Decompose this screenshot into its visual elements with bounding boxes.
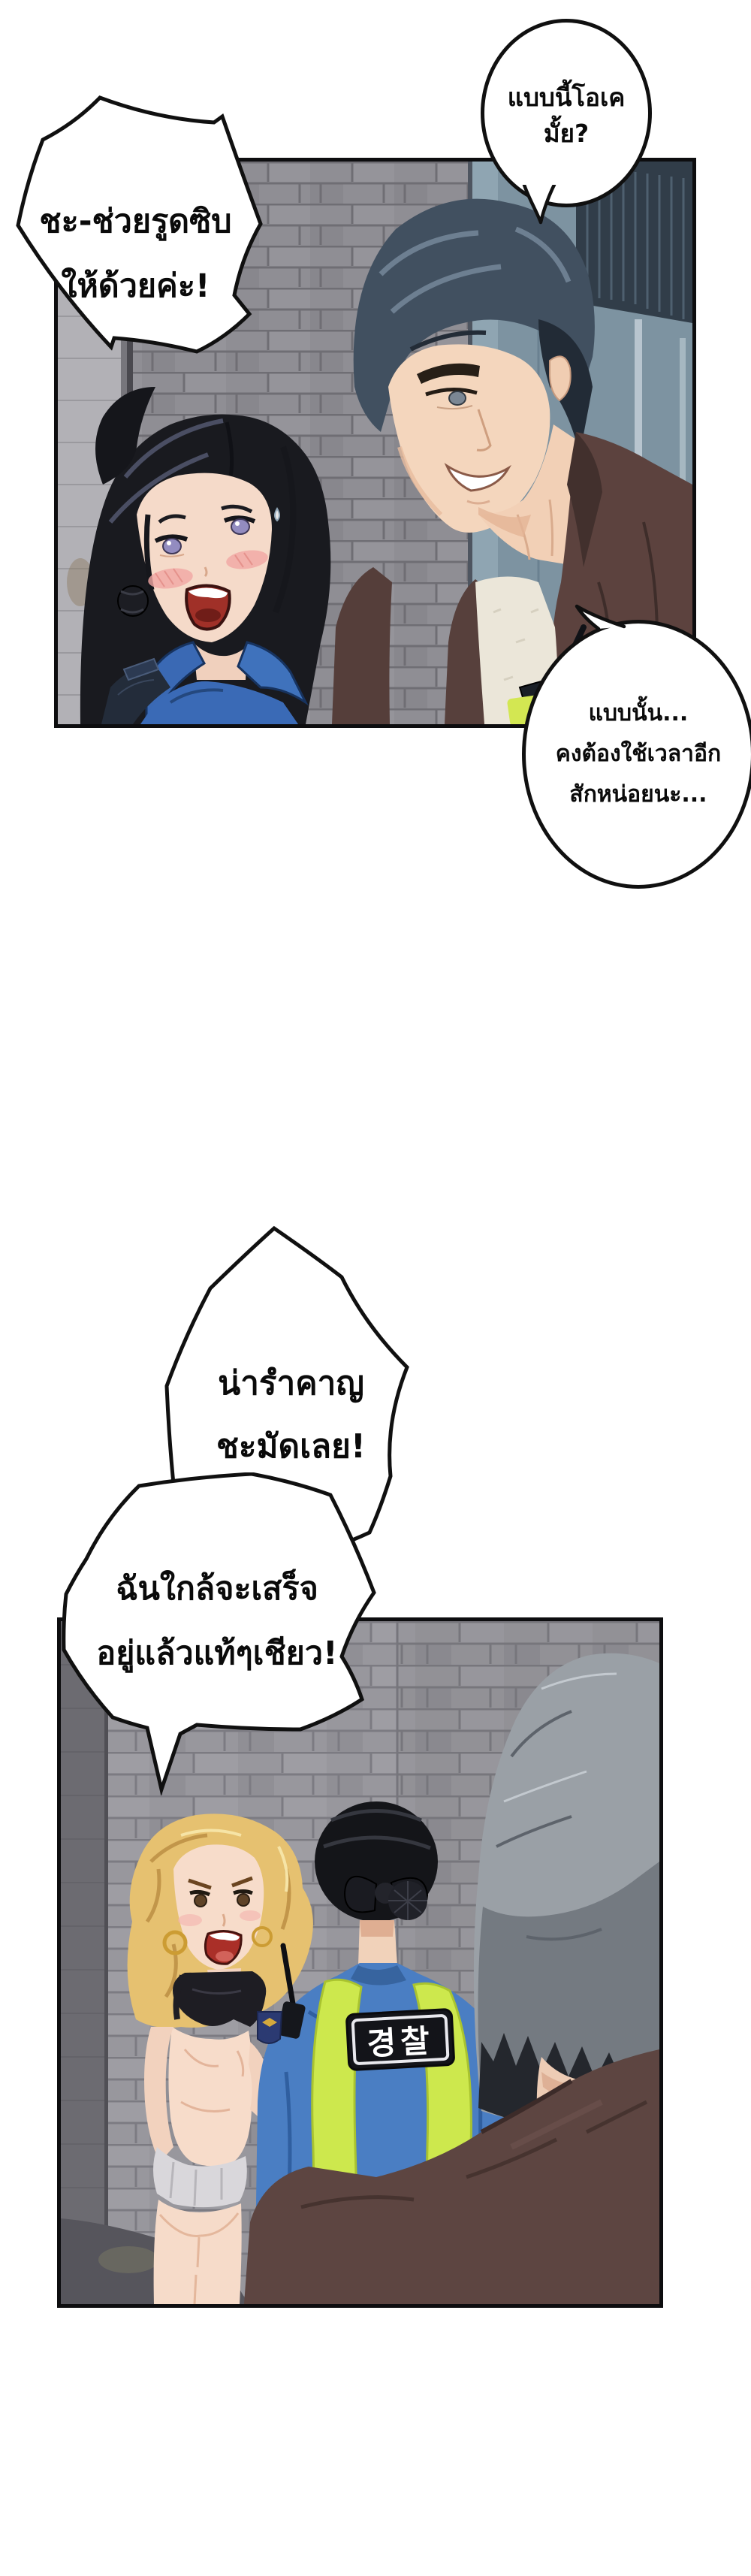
man-eye bbox=[449, 391, 466, 405]
policewoman-eye bbox=[163, 539, 181, 554]
bubble-zip-line-2: ให้ด้วยค่ะ! bbox=[6, 254, 265, 319]
bubble-annoyed-text: น่ารำคาญ ชะมัดเลย! bbox=[161, 1352, 421, 1478]
bubble-okay-line-1: แบบนี้โอเค bbox=[508, 80, 626, 116]
bubble-okay-tail bbox=[517, 185, 562, 228]
bubble-time-tail bbox=[567, 593, 635, 639]
bubble-time-line-2: คงต้องใช้เวลาอีก bbox=[556, 734, 721, 775]
bubble-almost-line-1: ฉันใกล้จะเสร็จ bbox=[53, 1557, 382, 1621]
bubble-zip-text: ชะ-ช่วยรูดซิบ ให้ด้วยค่ะ! bbox=[6, 189, 265, 319]
comic-page: 경찰 แบบนี้โอเค bbox=[0, 0, 751, 2576]
vest-label-text: 경찰 bbox=[366, 2022, 435, 2063]
bubble-annoyed-line-2: ชะมัดเลย! bbox=[161, 1415, 421, 1478]
hair-bow bbox=[345, 1877, 376, 1912]
bubble-time-line-3: สักหน่อยนะ... bbox=[569, 775, 707, 815]
bubble-time-line-1: แบบนั้น... bbox=[589, 693, 689, 734]
bubble-almost-text: ฉันใกล้จะเสร็จ อยู่แล้วแท้ๆเชียว! bbox=[53, 1557, 382, 1686]
bubble-okay-line-2: มั้ย? bbox=[544, 116, 589, 152]
torso bbox=[168, 2027, 252, 2167]
shoulder-patch bbox=[258, 2012, 282, 2043]
speech-bubble-time: แบบนั้น... คงต้องใช้เวลาอีก สักหน่อยนะ..… bbox=[522, 620, 751, 889]
bubble-annoyed-line-1: น่ารำคาญ bbox=[161, 1352, 421, 1415]
policewoman-eye bbox=[231, 519, 249, 534]
bubble-zip-line-1: ชะ-ช่วยรูดซิบ bbox=[6, 189, 265, 254]
bubble-almost-line-2: อยู่แล้วแท้ๆเชียว! bbox=[53, 1621, 382, 1686]
speech-bubble-okay: แบบนี้โอเค มั้ย? bbox=[481, 19, 652, 207]
eye bbox=[195, 1895, 207, 1907]
police-vest-label-panel: 경찰 bbox=[346, 2009, 454, 2070]
eye bbox=[237, 1894, 249, 1906]
